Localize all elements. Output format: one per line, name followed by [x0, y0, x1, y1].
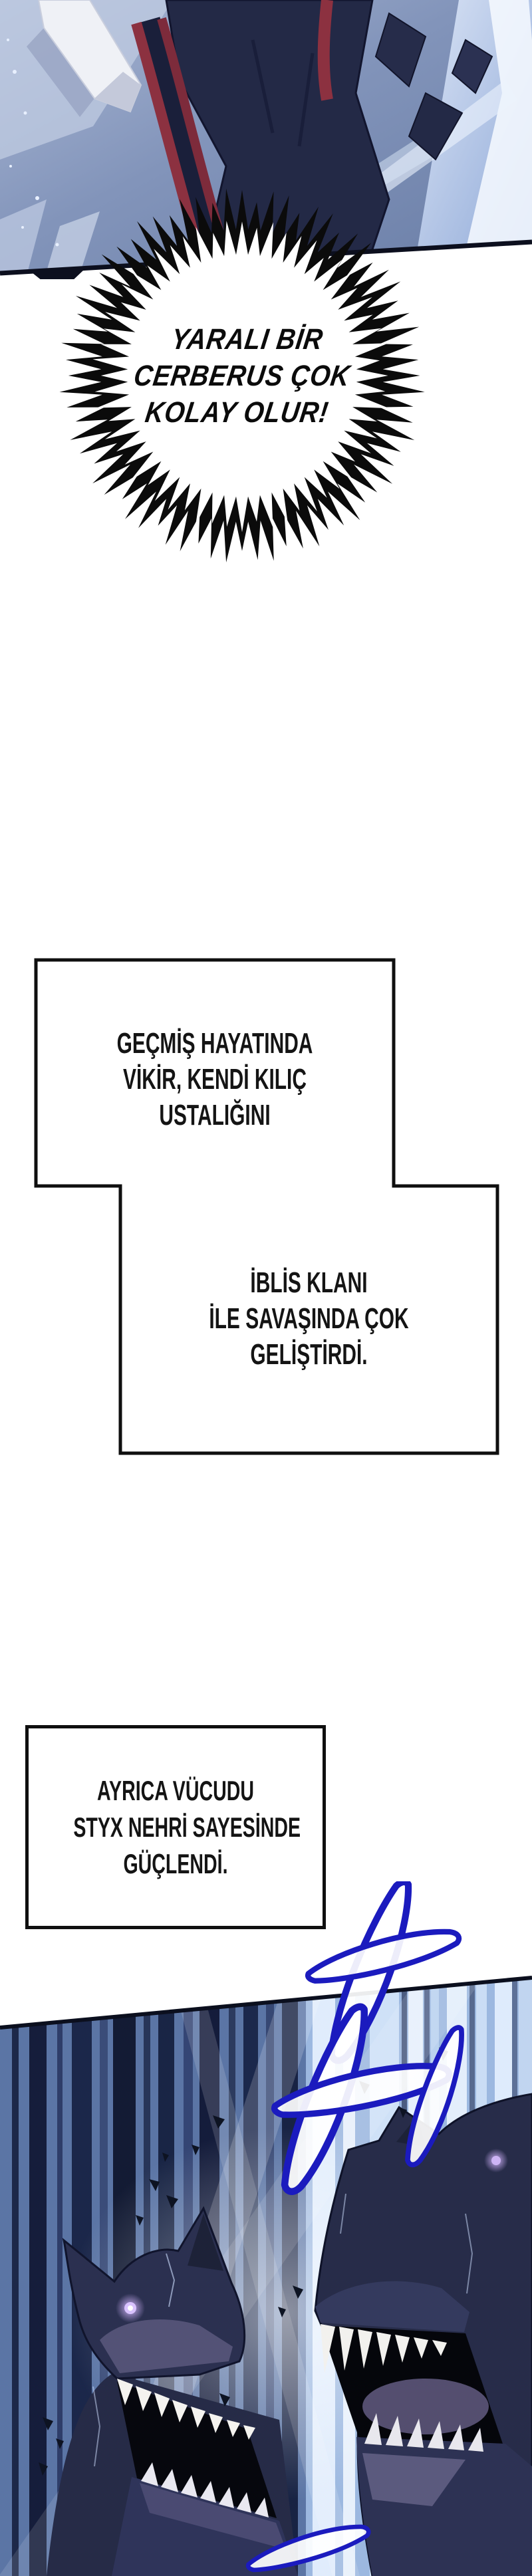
caption-line: GELİŞTİRDİ. — [181, 1337, 438, 1373]
comic-page: YARALI BİR CERBERUS ÇOK KOLAY OLUR! GEÇM… — [0, 0, 532, 2576]
bubble-line: CERBERUS ÇOK — [116, 358, 367, 394]
caption-line: VİKİR, KENDİ KILIÇ — [93, 1062, 336, 1098]
bottom-panel-illustration — [0, 1881, 532, 2576]
caption-3-text: AYRICA VÜCUDU STYX NEHRİ SAYESİNDE GÜÇLE… — [73, 1772, 277, 1882]
caption-line: İLE SAVAŞINDA ÇOK — [181, 1301, 438, 1337]
caption-2-text: İBLİS KLANI İLE SAVAŞINDA ÇOK GELİŞTİRDİ… — [181, 1265, 438, 1373]
shout-bubble-text: YARALI BİR CERBERUS ÇOK KOLAY OLUR! — [112, 321, 373, 431]
caption-line: İBLİS KLANI — [181, 1265, 438, 1301]
caption-line: GEÇMİŞ HAYATINDA — [93, 1026, 336, 1062]
caption-box-1-2 — [20, 944, 512, 1469]
caption-line: STYX NEHRİ SAYESİNDE — [73, 1809, 277, 1845]
caption-1-text: GEÇMİŞ HAYATINDA VİKİR, KENDİ KILIÇ USTA… — [93, 1026, 336, 1133]
caption-line: GÜÇLENDİ. — [73, 1845, 277, 1882]
caption-line: USTALIĞINI — [93, 1098, 336, 1133]
caption-line: AYRICA VÜCUDU — [73, 1772, 277, 1809]
bubble-line: KOLAY OLUR! — [112, 394, 362, 431]
bubble-line: YARALI BİR — [122, 321, 372, 358]
